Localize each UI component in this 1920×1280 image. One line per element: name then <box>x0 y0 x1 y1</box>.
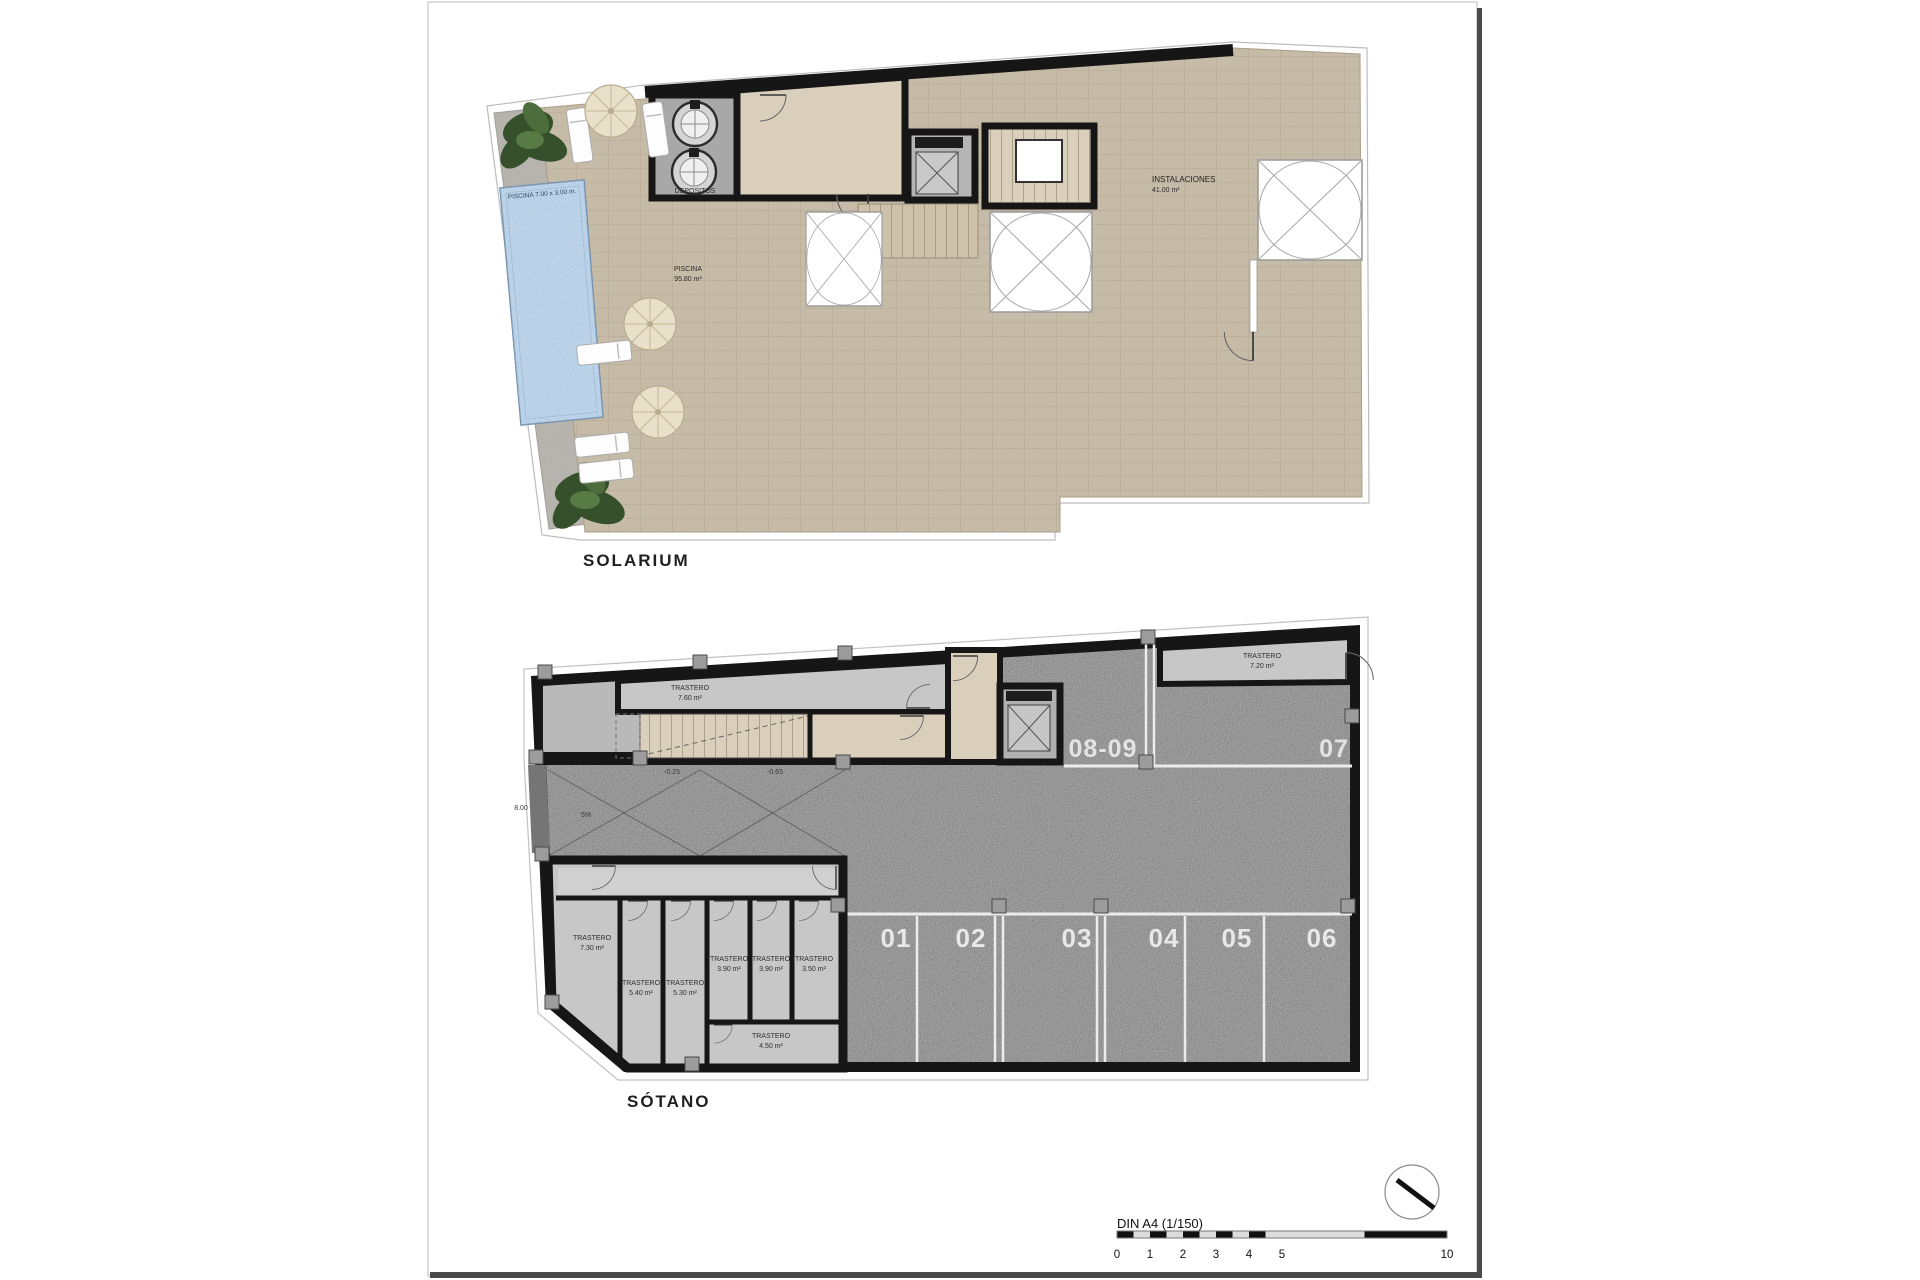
scale-tick-5: 5 <box>1279 1249 1285 1261</box>
storeroom-730-label: TRASTERO <box>573 935 612 942</box>
parking-space-02: 02 <box>956 923 987 953</box>
scale-tick-3: 3 <box>1213 1249 1219 1261</box>
sotano-title: SÓTANO <box>627 1092 710 1111</box>
sotano-plan: TRASTERO 7.60 m² TRASTERO <box>514 617 1373 1111</box>
water-tank-icon <box>673 100 717 146</box>
stairs <box>985 126 1094 206</box>
instalaciones-area: 41.00 m² <box>1152 187 1180 194</box>
storeroom-730-area: 7.30 m² <box>580 945 604 952</box>
level-lower-label: -0.65 <box>767 769 783 776</box>
storeroom-760-label: TRASTERO <box>671 685 710 692</box>
floorplan-svg: PISCINA 7.00 x 3.00 m. PISCINA 95.80 m² <box>0 0 1920 1280</box>
scale-tick-0: 0 <box>1114 1249 1120 1261</box>
ramp-length-label: 8.00 <box>514 805 528 812</box>
parking-space-05: 05 <box>1222 923 1253 953</box>
skylight-icon <box>990 212 1092 312</box>
parking-space-01: 01 <box>881 923 912 953</box>
elevator <box>908 132 975 200</box>
storeroom-720-area: 7.20 m² <box>1250 663 1274 670</box>
storeroom-350-area: 3.50 m² <box>802 966 826 973</box>
parking-space-03: 03 <box>1062 923 1093 953</box>
parking-space-04: 04 <box>1149 923 1180 953</box>
storeroom-530-area: 5.30 m² <box>673 990 697 997</box>
scale-tick-1: 1 <box>1147 1249 1153 1261</box>
storeroom-720-label: TRASTERO <box>1243 653 1282 660</box>
scale-tick-4: 4 <box>1246 1249 1253 1261</box>
scale-title: DIN A4 (1/150) <box>1117 1216 1203 1231</box>
parking-space-07: 07 <box>1319 735 1349 763</box>
pool-area-name: PISCINA <box>674 266 702 273</box>
storeroom-540-label: TRASTERO <box>622 980 661 987</box>
storeroom-450-area: 4.50 m² <box>759 1043 783 1050</box>
storeroom-390a-label: TRASTERO <box>710 956 749 963</box>
storeroom-350-label: TRASTERO <box>795 956 834 963</box>
storeroom-390a-area: 3.90 m² <box>717 966 741 973</box>
storeroom-390b-label: TRASTERO <box>752 956 791 963</box>
basement-elevator <box>1000 686 1060 762</box>
level-upper-label: -0.25 <box>664 769 680 776</box>
skylight-icon <box>806 212 882 306</box>
instalaciones-label: INSTALACIONES <box>1152 175 1215 184</box>
umbrella-icon <box>632 386 684 438</box>
storeroom-390b-area: 3.90 m² <box>759 966 783 973</box>
storeroom-530-label: TRASTERO <box>666 980 705 987</box>
umbrella-icon <box>624 298 676 350</box>
depositos-label: DEPOSITOS <box>675 188 716 195</box>
drawing-sheet: PISCINA 7.00 x 3.00 m. PISCINA 95.80 m² <box>0 0 1920 1280</box>
storeroom-720 <box>1160 637 1373 684</box>
north-arrow-icon <box>1385 1165 1439 1219</box>
storeroom-760-area: 7.60 m² <box>678 695 702 702</box>
storeroom-540-area: 5.40 m² <box>629 990 653 997</box>
scale-tick-10: 10 <box>1441 1249 1454 1261</box>
parking-space-0809: 08-09 <box>1069 735 1138 763</box>
storeroom-450-label: TRASTERO <box>752 1033 791 1040</box>
skylight-icon <box>1258 160 1362 260</box>
solarium-title: SOLARIUM <box>583 551 690 570</box>
storeroom-cluster <box>548 860 843 1068</box>
ramp-slope-label: 5% <box>581 812 591 819</box>
umbrella-icon <box>585 85 637 137</box>
scale-tick-2: 2 <box>1180 1249 1186 1261</box>
parking-space-06: 06 <box>1307 923 1338 953</box>
solarium-plan: PISCINA 7.00 x 3.00 m. PISCINA 95.80 m² <box>487 42 1369 570</box>
pool-area-value: 95.80 m² <box>674 276 702 283</box>
